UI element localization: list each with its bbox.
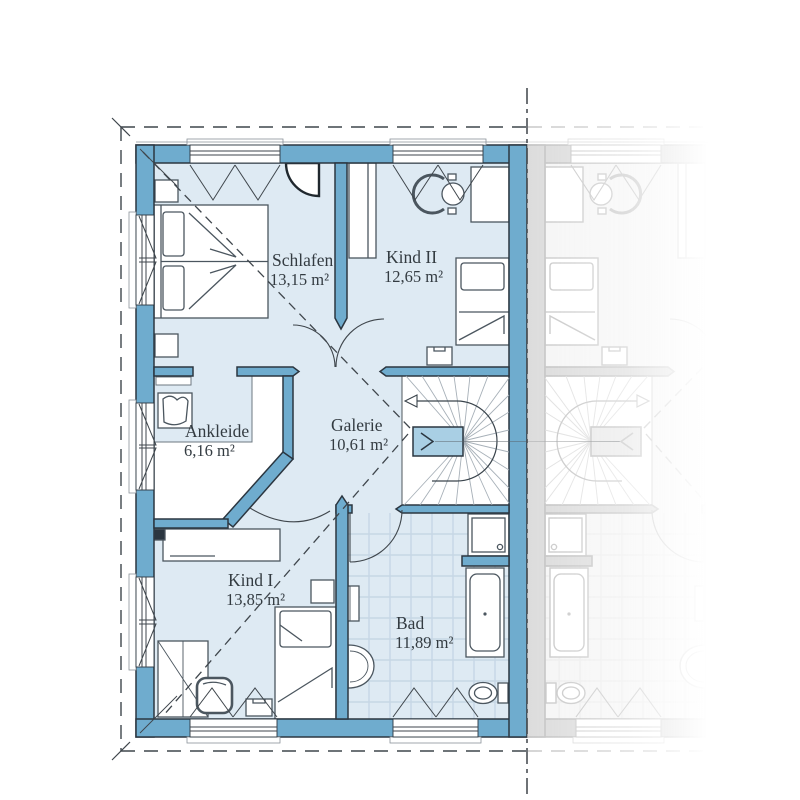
wall-stair-top (380, 367, 509, 376)
kind1-desk (154, 529, 280, 561)
kind2-bed (456, 258, 509, 345)
kind1-nightstand (246, 699, 272, 716)
room-area-schlafen: 13,15 m² (270, 270, 329, 289)
room-area-ankleide: 6,16 m² (184, 441, 235, 460)
room-label-kind2: Kind II 12,65 m² (384, 247, 443, 286)
kind1-sideboard (311, 580, 334, 603)
wall-ankleide-kind1 (154, 519, 228, 528)
room-area-galerie: 10,61 m² (329, 435, 388, 454)
room-label-galerie: Galerie 10,61 m² (329, 415, 388, 454)
kind2-nightstand (427, 347, 452, 365)
wall-schlafen-ankleide-b (237, 367, 299, 376)
bad-shower (468, 514, 509, 556)
bad-bathtub (466, 568, 504, 657)
wall-schlafen-ankleide-a (154, 367, 193, 376)
room-name-schlafen: Schlafen (272, 250, 333, 270)
room-name-kind1: Kind I (228, 570, 273, 590)
wall-schlafen-kind2 (335, 163, 347, 329)
ankleide-shelf (156, 377, 191, 385)
wall-party (509, 145, 527, 737)
wall-bad-top-right (396, 505, 509, 513)
bad-toilet (469, 683, 508, 704)
kind2-wardrobe (349, 163, 376, 258)
room-area-bad: 11,89 m² (395, 633, 453, 652)
room-area-kind1: 13,85 m² (226, 590, 285, 609)
wall-kind1-bad (336, 496, 348, 719)
kind1-bed (275, 607, 336, 719)
schlafen-nightstand-2 (155, 334, 178, 357)
room-label-schlafen: Schlafen 13,15 m² (270, 250, 333, 289)
room-name-kind2: Kind II (386, 247, 437, 267)
wall-ankleide-galerie (283, 376, 293, 459)
room-name-ankleide: Ankleide (185, 421, 249, 441)
room-name-bad: Bad (396, 613, 424, 633)
floor-plan-page: Schlafen 13,15 m² Kind II 12,65 m² Ankle… (0, 0, 800, 800)
room-area-kind2: 12,65 m² (384, 267, 443, 286)
wall-shower-stub (462, 556, 509, 566)
room-name-galerie: Galerie (331, 415, 383, 435)
floor-plan-canvas: Schlafen 13,15 m² Kind II 12,65 m² Ankle… (0, 0, 800, 800)
